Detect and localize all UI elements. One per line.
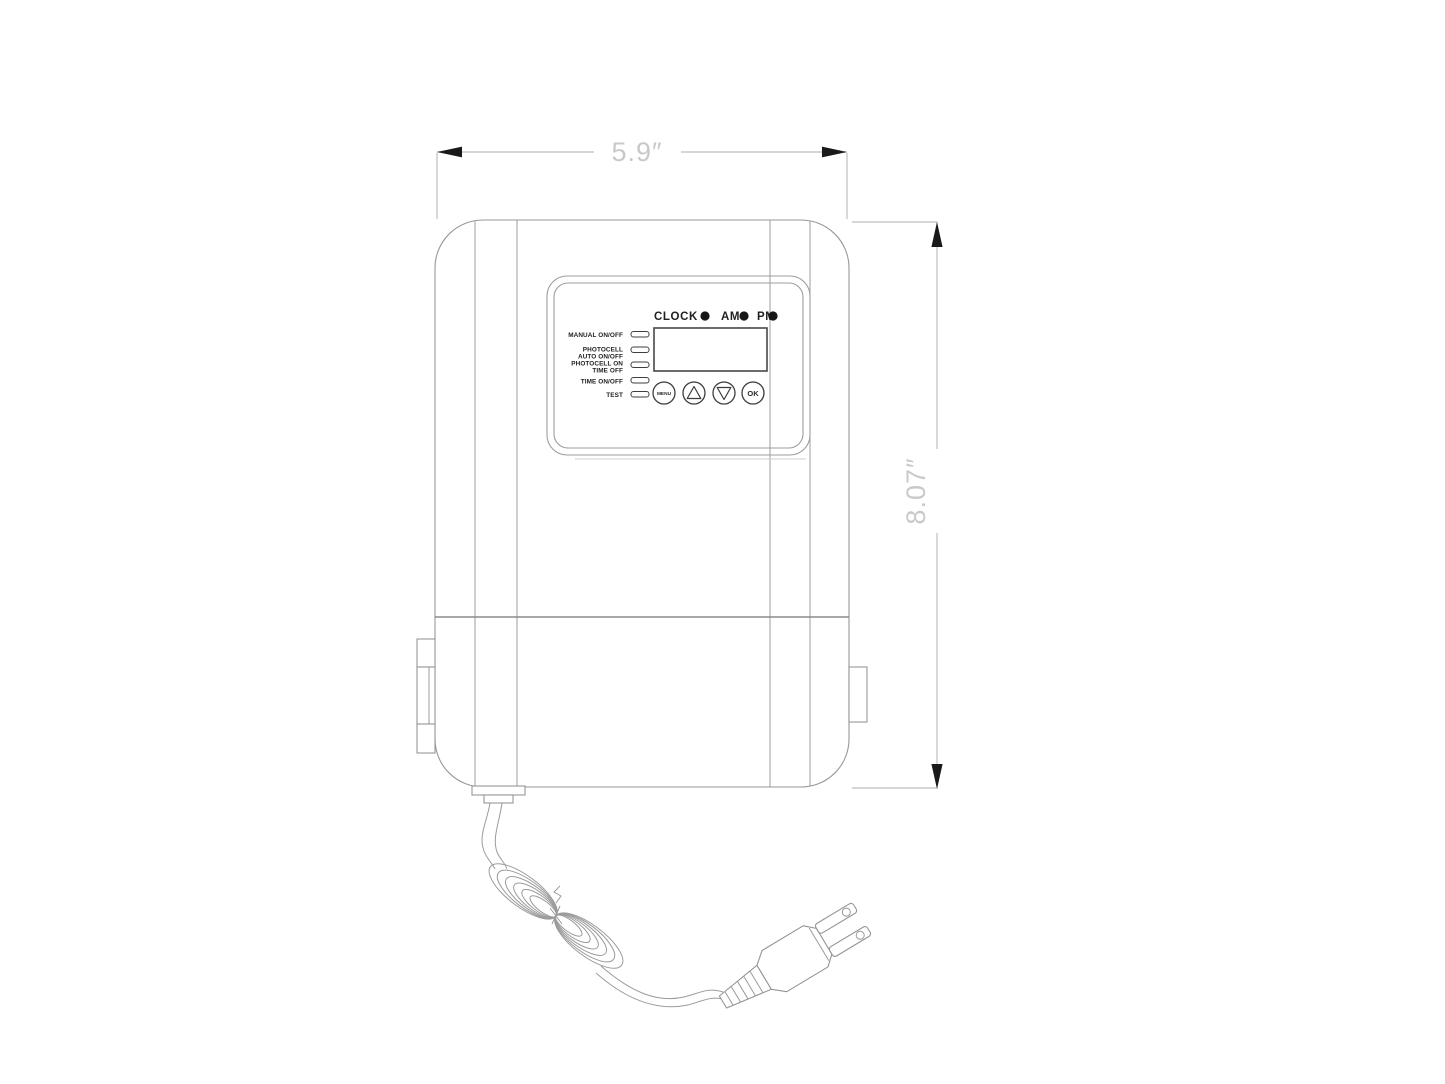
- menu-button-label: MENU: [657, 391, 672, 397]
- pm-led-icon: [768, 311, 777, 320]
- height-arrow-top-icon: [931, 222, 942, 247]
- up-button: [683, 382, 705, 404]
- power-plug: [711, 898, 875, 1023]
- indicator-label: MANUAL ON/OFF: [568, 332, 623, 339]
- width-dimension-label: 5.9″: [611, 137, 662, 167]
- lcd-display: [654, 328, 767, 371]
- mounting-bracket-left: [417, 639, 435, 753]
- indicator-led: [631, 347, 649, 353]
- width-arrow-left-icon: [437, 147, 462, 158]
- device-body: [417, 219, 867, 803]
- indicator-label: PHOTOCELL: [583, 347, 623, 354]
- bracket-segment: [417, 639, 435, 667]
- indicator-label: TEST: [606, 392, 623, 399]
- bracket-segment: [417, 667, 435, 724]
- clock-label: CLOCK: [654, 311, 698, 323]
- ok-button-label: OK: [747, 389, 759, 398]
- ok-button: OK: [742, 382, 764, 404]
- technical-drawing: 5.9″ 8.07″: [0, 0, 1445, 1084]
- gland-neck: [484, 795, 513, 803]
- indicator-label: AUTO ON/OFF: [578, 354, 623, 361]
- indicator-led: [631, 332, 649, 338]
- down-button: [713, 382, 735, 404]
- indicator-label: TIME OFF: [592, 368, 623, 375]
- cord-lead-line: [482, 803, 495, 869]
- height-arrow-bottom-icon: [931, 764, 942, 789]
- tab-segment: [849, 667, 867, 722]
- side-tab-right: [849, 667, 867, 722]
- height-dimension-label: 8.07″: [901, 457, 931, 524]
- width-arrow-right-icon: [822, 147, 847, 158]
- indicator-label: TIME ON/OFF: [581, 379, 623, 386]
- gland-flange: [472, 786, 525, 795]
- indicator-label: PHOTOCELL ON: [571, 361, 623, 368]
- indicator-led: [631, 392, 649, 398]
- cord-lead-line: [495, 803, 507, 869]
- menu-button: MENU: [653, 382, 675, 404]
- width-dimension: 5.9″: [437, 137, 847, 219]
- up-button-circle: [683, 382, 705, 404]
- plug-blade: [828, 925, 871, 957]
- cord-coil: [481, 854, 631, 977]
- indicator-led: [631, 378, 649, 384]
- power-cord: [481, 803, 726, 1007]
- device-outline: [435, 220, 849, 787]
- drawing-canvas: 5.9″ 8.07″: [0, 0, 1445, 1084]
- clock-led-icon: [700, 311, 709, 320]
- am-led-icon: [739, 311, 748, 320]
- indicator-led: [631, 362, 649, 368]
- plug-blade: [814, 902, 857, 934]
- cable-gland: [472, 786, 525, 803]
- am-label: AM: [721, 311, 740, 323]
- cord-lead-line: [601, 966, 723, 999]
- down-button-circle: [713, 382, 735, 404]
- bracket-segment: [417, 724, 435, 753]
